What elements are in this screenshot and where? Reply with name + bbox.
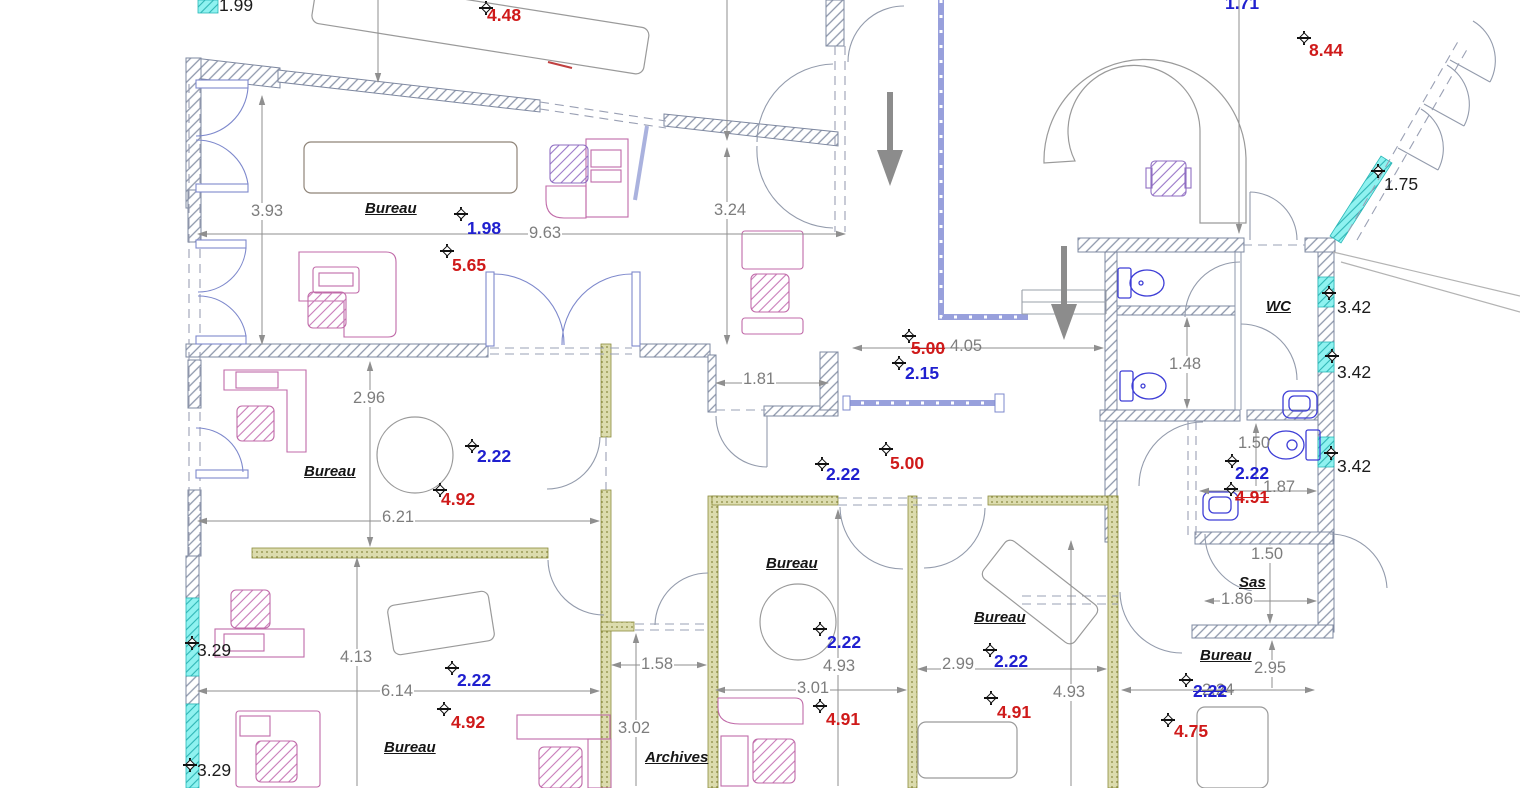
coordinate-label-blue: 2.22 xyxy=(477,447,511,465)
coordinate-label-blue: 2.22 xyxy=(457,671,491,689)
coordinate-label-red: 5.00 xyxy=(890,454,924,472)
coordinate-label-blue: 2.22 xyxy=(1235,464,1269,482)
coordinate-label-blue: 2.22 xyxy=(994,652,1028,670)
coordinate-label-red: 4.91 xyxy=(1235,488,1269,506)
room-label: Bureau xyxy=(766,556,818,572)
survey-point-marker-icon xyxy=(813,622,827,636)
dimension-label: 2.95 xyxy=(1253,660,1287,677)
dimension-label: 1.86 xyxy=(1220,591,1254,608)
survey-point-marker-icon xyxy=(892,356,906,370)
door-swings xyxy=(547,6,1495,653)
room-label: Bureau xyxy=(1200,648,1252,664)
level-label: 3.29 xyxy=(197,761,231,779)
dimension-label: 1.48 xyxy=(1168,356,1202,373)
dimension-label: 6.21 xyxy=(381,509,415,526)
toilet-icon xyxy=(1268,430,1320,460)
dimension-label: 4.05 xyxy=(950,338,982,355)
coordinate-label-blue: 2.22 xyxy=(826,465,860,483)
survey-point-marker-icon xyxy=(1325,349,1339,363)
survey-point-marker-icon xyxy=(454,207,468,221)
dimension-label: 1.81 xyxy=(742,371,776,388)
toilet-icon xyxy=(1120,371,1166,401)
coordinate-label-red: 4.48 xyxy=(487,6,521,24)
dimension-label: 4.13 xyxy=(339,649,373,666)
reception-desk xyxy=(1044,59,1246,223)
level-label: 3.42 xyxy=(1337,298,1371,316)
coordinate-label-red: 4.75 xyxy=(1174,722,1208,740)
dimension-label: 3.93 xyxy=(250,203,284,220)
toilet-icon xyxy=(1118,268,1164,298)
level-label: 1.75 xyxy=(1384,175,1418,193)
room-label: Bureau xyxy=(365,201,417,217)
survey-point-marker-icon xyxy=(183,758,197,772)
dimension-label: 3.02 xyxy=(617,720,651,737)
floor-plan-drawing xyxy=(0,0,1520,788)
coordinate-label-blue: 2.22 xyxy=(827,633,861,651)
survey-point-marker-icon xyxy=(437,702,451,716)
office-chairs xyxy=(550,145,1191,196)
room-label: Bureau xyxy=(304,464,356,480)
dimension-label: 4.93 xyxy=(1052,684,1086,701)
coordinate-label-red: 8.44 xyxy=(1309,41,1343,59)
dimension-label: 2.96 xyxy=(352,390,386,407)
survey-point-marker-icon xyxy=(813,699,827,713)
survey-point-marker-icon xyxy=(1371,164,1385,178)
level-label: 3.42 xyxy=(1337,363,1371,381)
survey-point-marker-icon xyxy=(1161,713,1175,727)
coordinate-label-red: 4.91 xyxy=(997,703,1031,721)
room-label: Archives xyxy=(645,750,708,766)
exterior-walls xyxy=(186,0,1335,704)
coordinate-label-blue: 1.71 xyxy=(1225,0,1259,12)
level-label: 3.29 xyxy=(197,641,231,659)
coordinate-label-blue: 2.15 xyxy=(905,364,939,382)
dimension-label: 2.99 xyxy=(941,656,975,673)
dimension-label: 1.58 xyxy=(640,656,674,673)
survey-point-marker-icon xyxy=(1322,286,1336,300)
coordinate-label-red: 4.92 xyxy=(451,713,485,731)
level-label: 1.99 xyxy=(219,0,253,14)
room-label: WC xyxy=(1266,299,1291,315)
dimension-label: 1.50 xyxy=(1238,435,1270,452)
room-label: Sas xyxy=(1239,575,1266,591)
wc-thin-partition xyxy=(1235,252,1241,410)
survey-point-marker-icon xyxy=(984,691,998,705)
coordinate-label-red: 4.92 xyxy=(441,490,475,508)
coordinate-label-blue: 2.22 xyxy=(1193,682,1227,700)
floor-plan-canvas: 3.939.633.244.051.812.966.211.481.501.87… xyxy=(0,0,1520,788)
direction-arrow-icons xyxy=(877,92,1077,340)
coordinate-label-red: 5.65 xyxy=(452,256,486,274)
coordinate-label-red: 5.00 xyxy=(911,339,945,357)
room-label: Bureau xyxy=(384,740,436,756)
dimension-label: 1.50 xyxy=(1250,546,1284,563)
dimension-label: 6.14 xyxy=(380,683,414,700)
level-label: 3.42 xyxy=(1337,457,1371,475)
survey-point-marker-icon xyxy=(1324,446,1338,460)
dimension-label: 4.93 xyxy=(822,658,856,675)
sink-icon xyxy=(1203,492,1238,520)
dimension-label: 3.01 xyxy=(796,680,830,697)
dimension-label: 9.63 xyxy=(528,225,562,242)
coordinate-label-red: 4.91 xyxy=(826,710,860,728)
room-label: Bureau xyxy=(974,610,1026,626)
coordinate-label-blue: 1.98 xyxy=(467,219,501,237)
dimension-label: 3.24 xyxy=(713,202,747,219)
survey-point-marker-icon xyxy=(1179,673,1193,687)
